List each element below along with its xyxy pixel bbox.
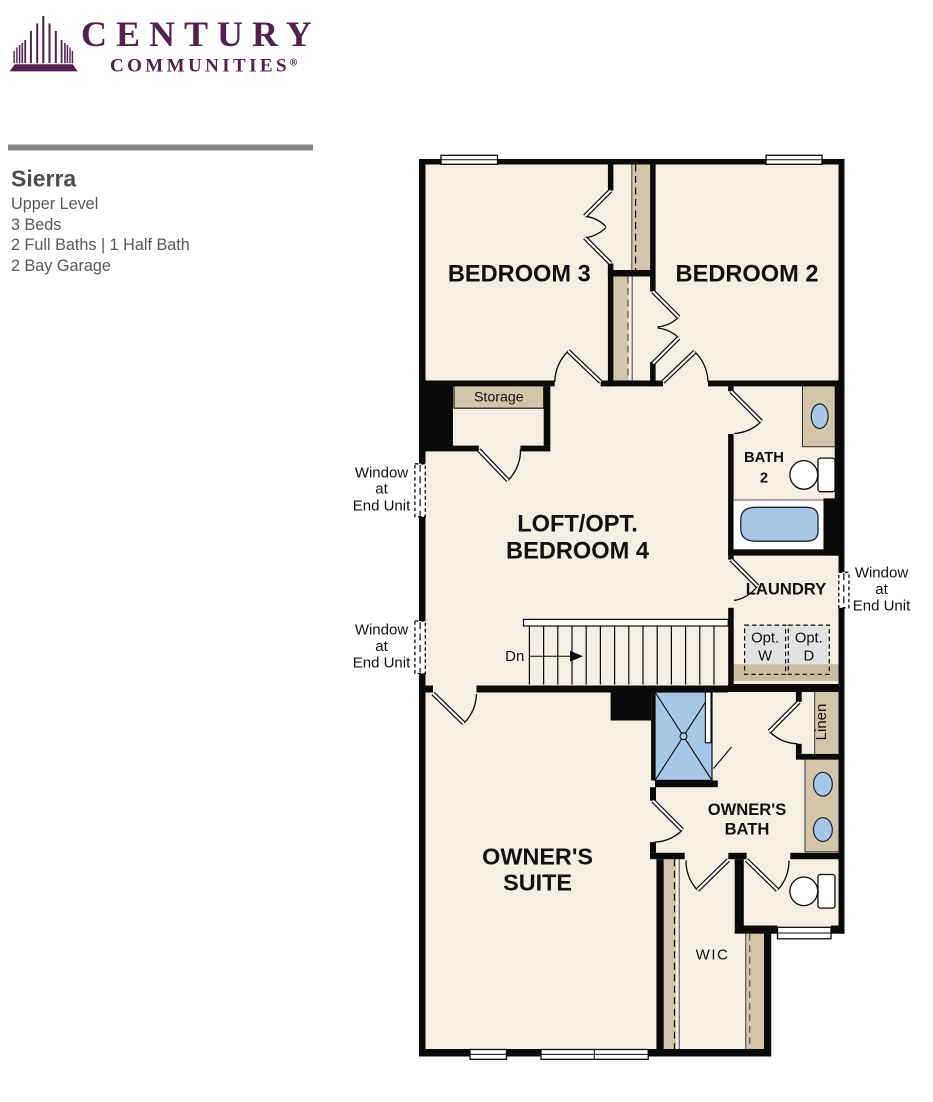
svg-text:BATH: BATH (744, 450, 784, 466)
svg-text:CENTURY: CENTURY (81, 14, 321, 54)
svg-text:COMMUNITIES®: COMMUNITIES® (110, 56, 301, 77)
svg-text:W: W (758, 648, 772, 664)
svg-text:End Unit: End Unit (853, 598, 911, 615)
svg-text:BATH: BATH (725, 820, 770, 839)
svg-text:SUITE: SUITE (503, 869, 572, 895)
svg-text:Storage: Storage (474, 390, 524, 406)
svg-text:OWNER'S: OWNER'S (708, 800, 787, 819)
svg-text:Sierra: Sierra (11, 166, 76, 192)
svg-text:D: D (803, 648, 814, 664)
svg-text:at: at (875, 581, 888, 598)
svg-text:Linen: Linen (813, 704, 830, 741)
svg-text:Window: Window (355, 622, 409, 639)
svg-text:Dn: Dn (505, 648, 524, 665)
svg-text:2 Full Baths | 1 Half Bath: 2 Full Baths | 1 Half Bath (11, 236, 190, 254)
svg-text:End Unit: End Unit (353, 655, 411, 672)
svg-text:Window: Window (355, 464, 409, 481)
svg-text:BEDROOM 3: BEDROOM 3 (448, 261, 591, 287)
svg-text:2 Bay Garage: 2 Bay Garage (11, 257, 111, 275)
svg-text:LOFT/OPT.: LOFT/OPT. (517, 511, 638, 537)
svg-text:Upper Level: Upper Level (11, 195, 98, 213)
svg-text:End Unit: End Unit (353, 497, 411, 514)
svg-text:at: at (375, 481, 388, 498)
svg-text:Window: Window (855, 565, 909, 582)
svg-text:at: at (375, 638, 388, 655)
svg-text:BEDROOM 4: BEDROOM 4 (506, 538, 649, 564)
svg-text:Opt.: Opt. (795, 631, 823, 647)
svg-text:WIC: WIC (696, 947, 730, 964)
svg-text:LAUNDRY: LAUNDRY (746, 580, 827, 599)
svg-text:Opt.: Opt. (751, 631, 779, 647)
svg-text:2: 2 (760, 471, 768, 487)
svg-text:3 Beds: 3 Beds (11, 216, 61, 234)
svg-text:OWNER'S: OWNER'S (482, 843, 593, 869)
svg-text:BEDROOM 2: BEDROOM 2 (676, 261, 819, 287)
